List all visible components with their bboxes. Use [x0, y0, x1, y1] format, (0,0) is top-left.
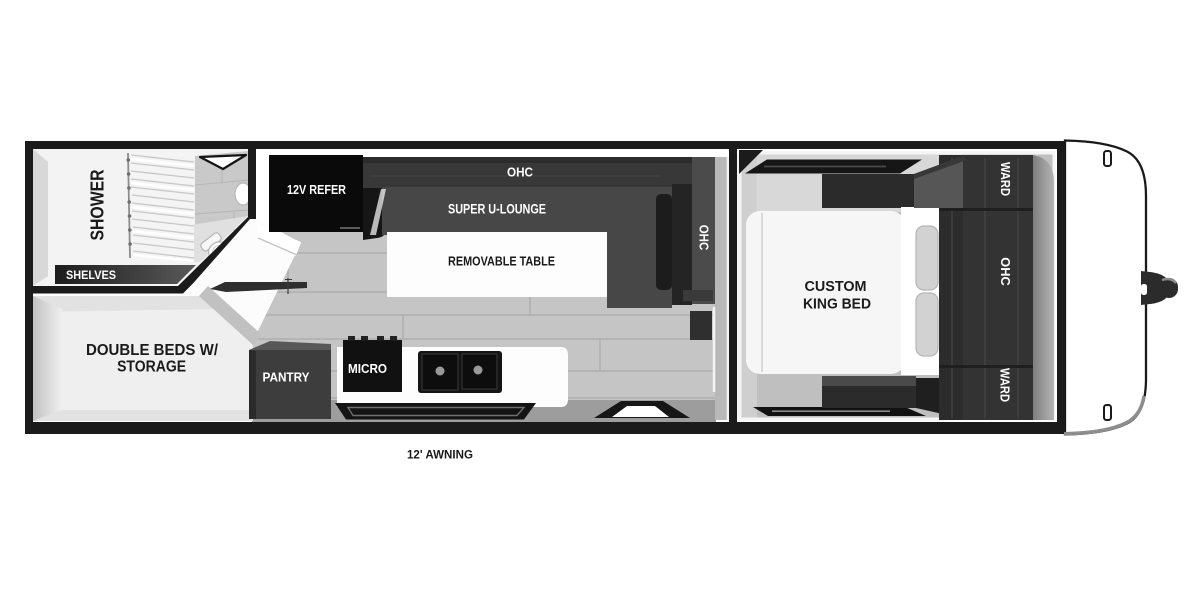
svg-text:SUPER U-LOUNGE: SUPER U-LOUNGE: [448, 202, 546, 217]
svg-text:STORAGE: STORAGE: [117, 359, 186, 376]
svg-text:12V REFER: 12V REFER: [287, 182, 347, 197]
svg-text:OHC: OHC: [507, 166, 533, 180]
svg-text:KING BED: KING BED: [803, 297, 871, 313]
svg-text:REMOVABLE TABLE: REMOVABLE TABLE: [448, 254, 555, 269]
svg-text:CUSTOM: CUSTOM: [805, 279, 867, 295]
svg-text:MICRO: MICRO: [348, 361, 387, 376]
svg-text:SHOWER: SHOWER: [88, 169, 108, 240]
svg-text:DOUBLE BEDS W/: DOUBLE BEDS W/: [86, 342, 219, 359]
svg-text:SHELVES: SHELVES: [66, 268, 116, 282]
svg-text:OHC: OHC: [998, 257, 1013, 286]
svg-text:PANTRY: PANTRY: [263, 371, 310, 385]
svg-text:WARD: WARD: [998, 162, 1013, 196]
svg-text:OHC: OHC: [697, 225, 711, 251]
svg-text:12' AWNING: 12' AWNING: [407, 450, 473, 462]
svg-text:WARD: WARD: [998, 368, 1013, 402]
